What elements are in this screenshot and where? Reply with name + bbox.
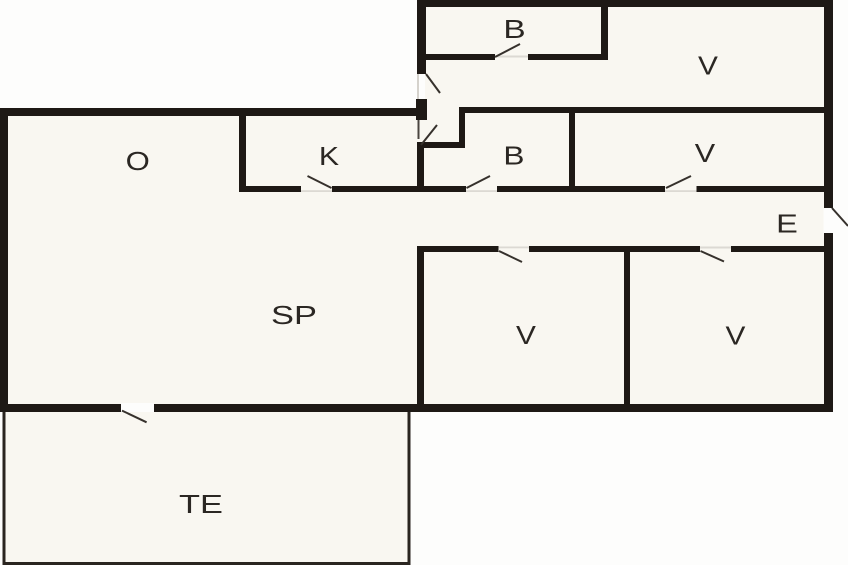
svg-text:O: O [126, 146, 150, 176]
svg-text:K: K [319, 141, 340, 171]
svg-text:E: E [776, 209, 798, 239]
svg-text:V: V [698, 51, 719, 81]
svg-text:V: V [695, 138, 716, 168]
svg-text:B: B [503, 14, 525, 44]
svg-text:TE: TE [179, 489, 223, 519]
svg-text:V: V [516, 320, 537, 350]
svg-text:SP: SP [271, 300, 317, 330]
svg-text:V: V [726, 321, 747, 351]
svg-text:B: B [503, 141, 524, 171]
